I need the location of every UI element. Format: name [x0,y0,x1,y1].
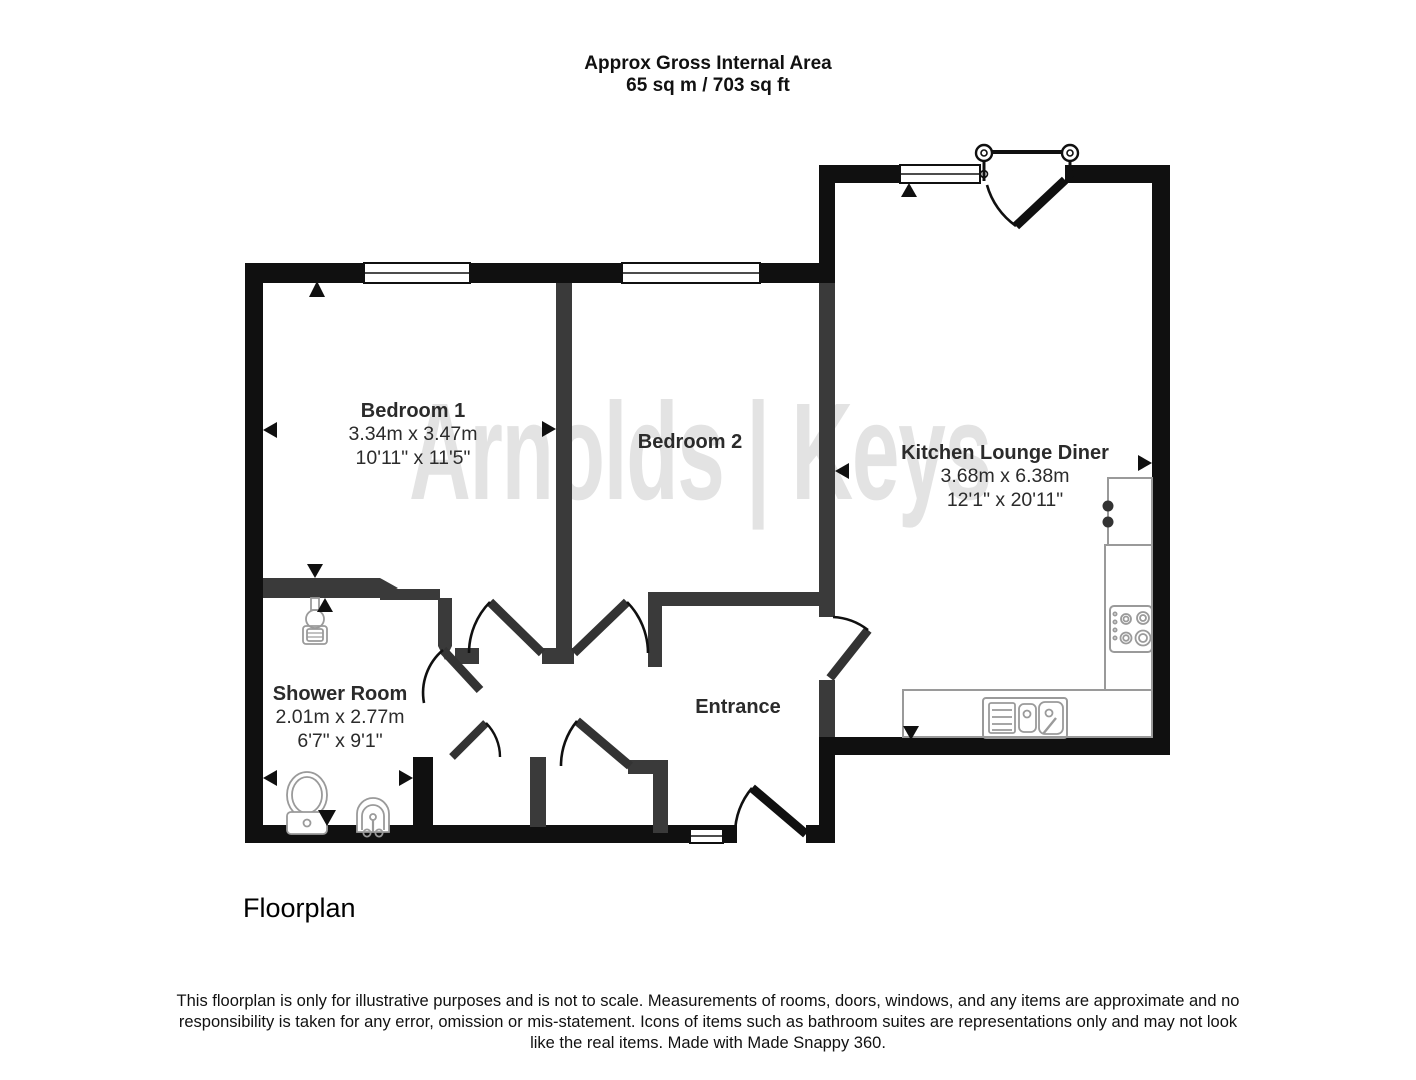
direction-marker-icon [901,183,917,197]
direction-marker-icon [263,770,277,786]
window-icon [900,165,980,183]
floorplan-drawing [0,0,1416,1080]
direction-marker-icon [263,422,277,438]
door-swing-icon [735,788,806,834]
door-swing-icon [574,602,648,653]
floorplan-caption: Floorplan [243,893,356,924]
juliet-balcony-railing-icon [976,145,1078,181]
appliance-icon [1103,478,1153,545]
basin-icon [357,798,389,837]
door-swing-icon [987,180,1065,226]
disclaimer-text: This floorplan is only for illustrative … [175,991,1241,1054]
direction-marker-icon [307,564,323,578]
shower-room-fixtures [287,598,389,837]
door-swing-icon [452,723,500,757]
floorplan-page: Approx Gross Internal Area 65 sq m / 703… [0,0,1416,1080]
door-swing-icon [561,721,630,766]
direction-marker-icon [399,770,413,786]
direction-marker-icon [835,463,849,479]
direction-marker-icon [309,281,325,297]
window-icon [364,263,470,283]
door-swing-icon [469,602,542,653]
kitchen-fixtures [903,478,1152,738]
direction-marker-icon [542,421,556,437]
interior-walls [263,283,835,833]
window-icon [690,829,723,843]
window-icon [622,263,760,283]
door-swing-icon [830,617,868,678]
direction-marker-icon [1138,455,1152,471]
toilet-icon [287,772,327,834]
